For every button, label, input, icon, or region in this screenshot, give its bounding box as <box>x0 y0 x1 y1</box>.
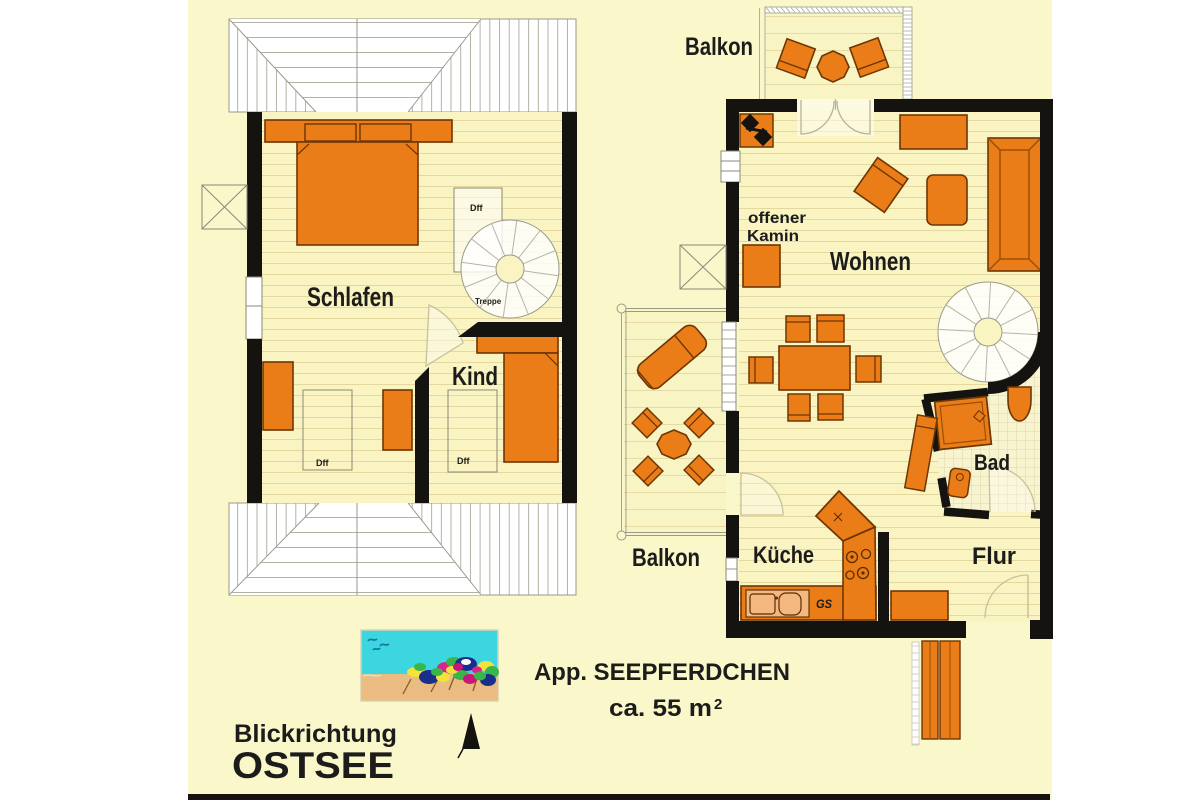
svg-text:Kamin: Kamin <box>747 228 799 245</box>
svg-text:Kind: Kind <box>452 361 498 391</box>
svg-text:2: 2 <box>714 696 722 713</box>
svg-text:Balkon: Balkon <box>632 544 700 572</box>
svg-text:OSTSEE: OSTSEE <box>232 745 394 786</box>
svg-text:GS: GS <box>816 597 832 611</box>
svg-text:ca. 55 m: ca. 55 m <box>609 695 712 722</box>
svg-text:Flur: Flur <box>972 543 1016 570</box>
svg-text:Blickrichtung: Blickrichtung <box>234 720 397 748</box>
svg-text:App. SEEPFERDCHEN: App. SEEPFERDCHEN <box>534 659 790 686</box>
svg-text:Bad: Bad <box>974 450 1010 475</box>
svg-text:Balkon: Balkon <box>685 33 753 61</box>
svg-text:Wohnen: Wohnen <box>830 246 911 276</box>
svg-text:Treppe: Treppe <box>475 297 502 306</box>
svg-text:Küche: Küche <box>753 542 814 569</box>
svg-text:Dff: Dff <box>457 456 470 466</box>
svg-text:Dff: Dff <box>470 203 483 213</box>
svg-text:Schlafen: Schlafen <box>307 282 394 312</box>
svg-text:Dff: Dff <box>316 458 329 468</box>
svg-text:offener: offener <box>748 210 806 227</box>
